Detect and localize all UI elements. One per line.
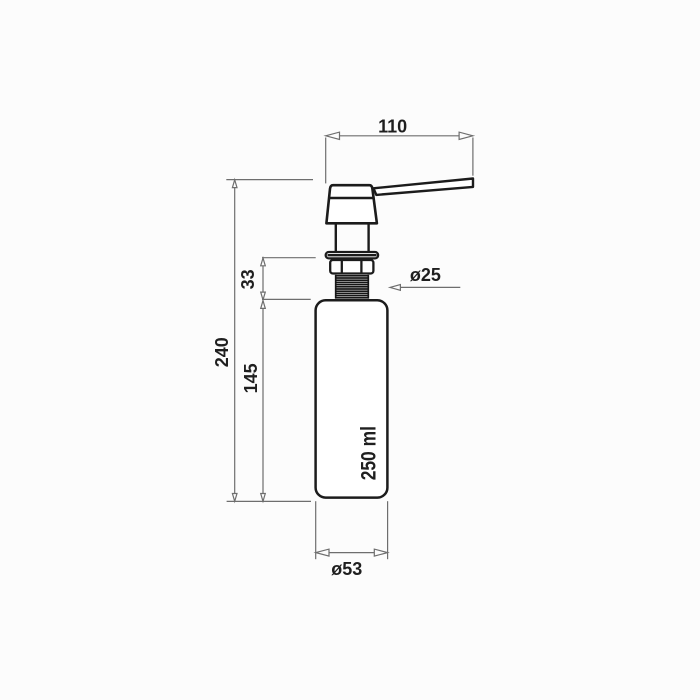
svg-text:240: 240 — [212, 337, 232, 367]
svg-text:ø53: ø53 — [331, 559, 362, 579]
svg-text:110: 110 — [378, 117, 407, 137]
svg-text:250 ml: 250 ml — [358, 426, 381, 480]
svg-text:33: 33 — [238, 269, 258, 289]
svg-text:ø25: ø25 — [410, 265, 441, 285]
svg-text:145: 145 — [241, 363, 261, 393]
